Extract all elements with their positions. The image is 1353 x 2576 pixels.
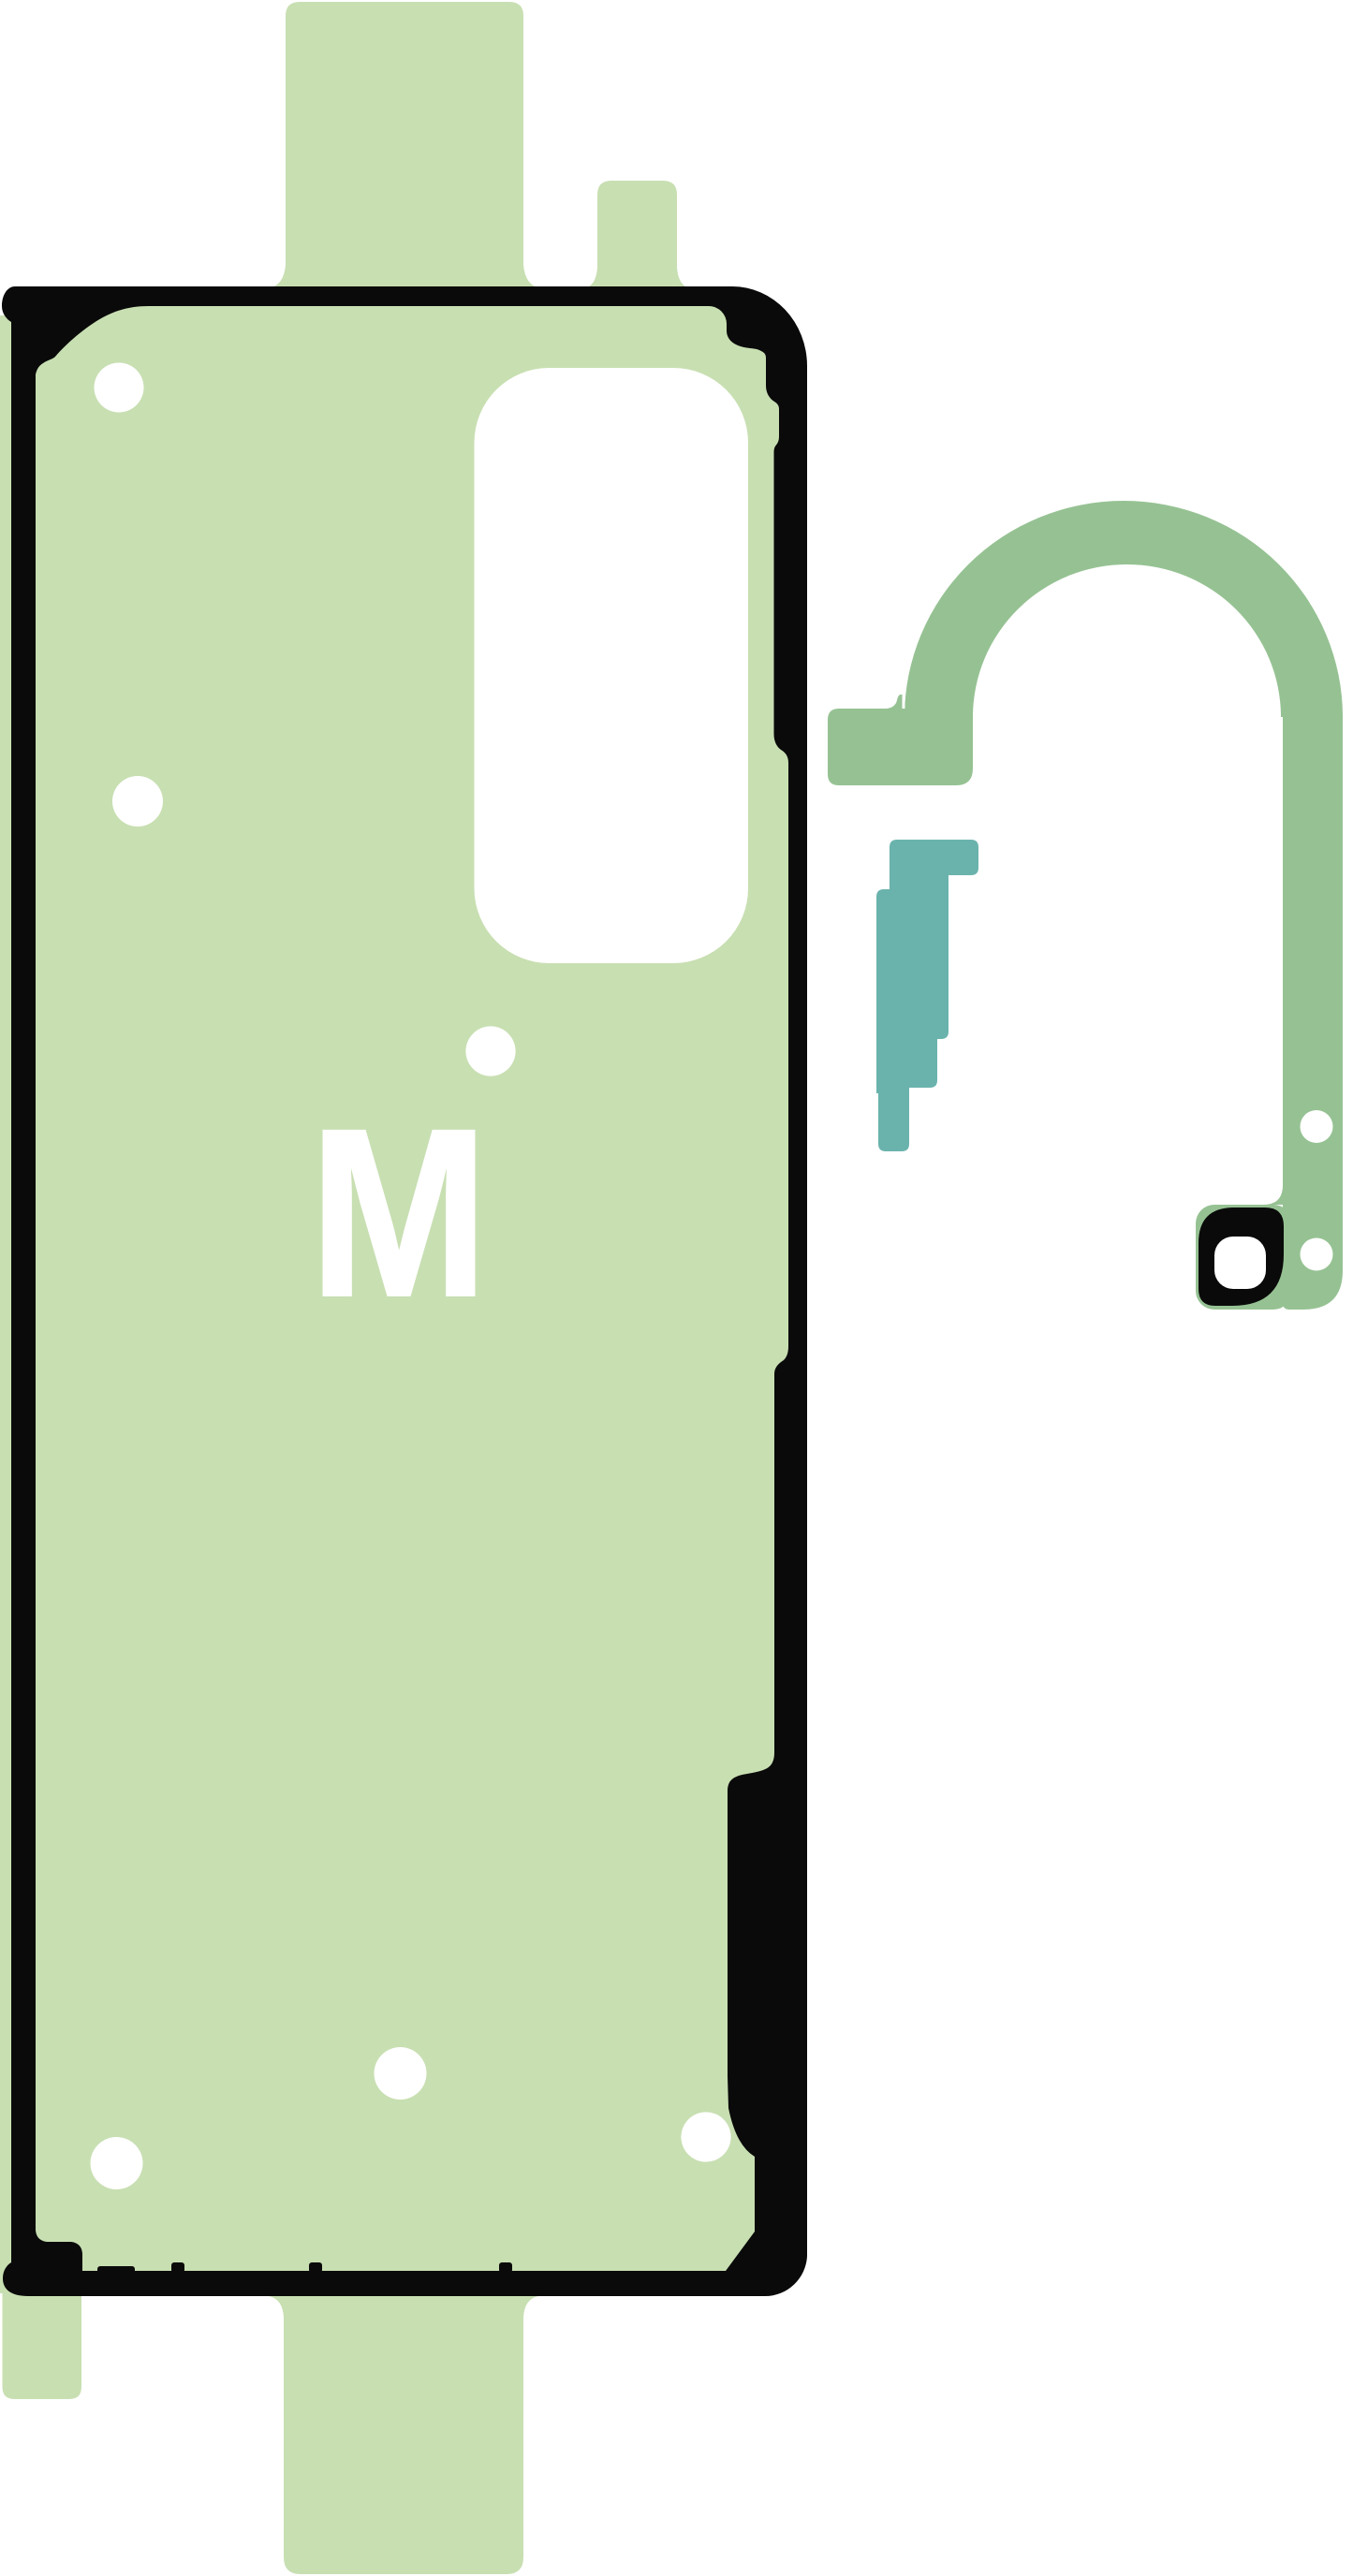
svg-text:M: M [309,1079,489,1347]
